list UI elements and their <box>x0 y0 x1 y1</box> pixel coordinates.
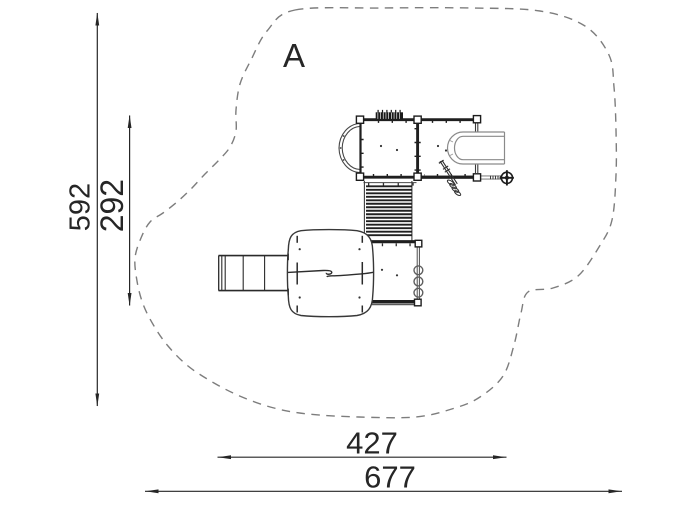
svg-text:292: 292 <box>94 179 130 232</box>
svg-text:592: 592 <box>65 183 97 231</box>
svg-text:677: 677 <box>364 460 416 495</box>
svg-text:427: 427 <box>346 426 398 461</box>
svg-text:A: A <box>283 37 305 74</box>
